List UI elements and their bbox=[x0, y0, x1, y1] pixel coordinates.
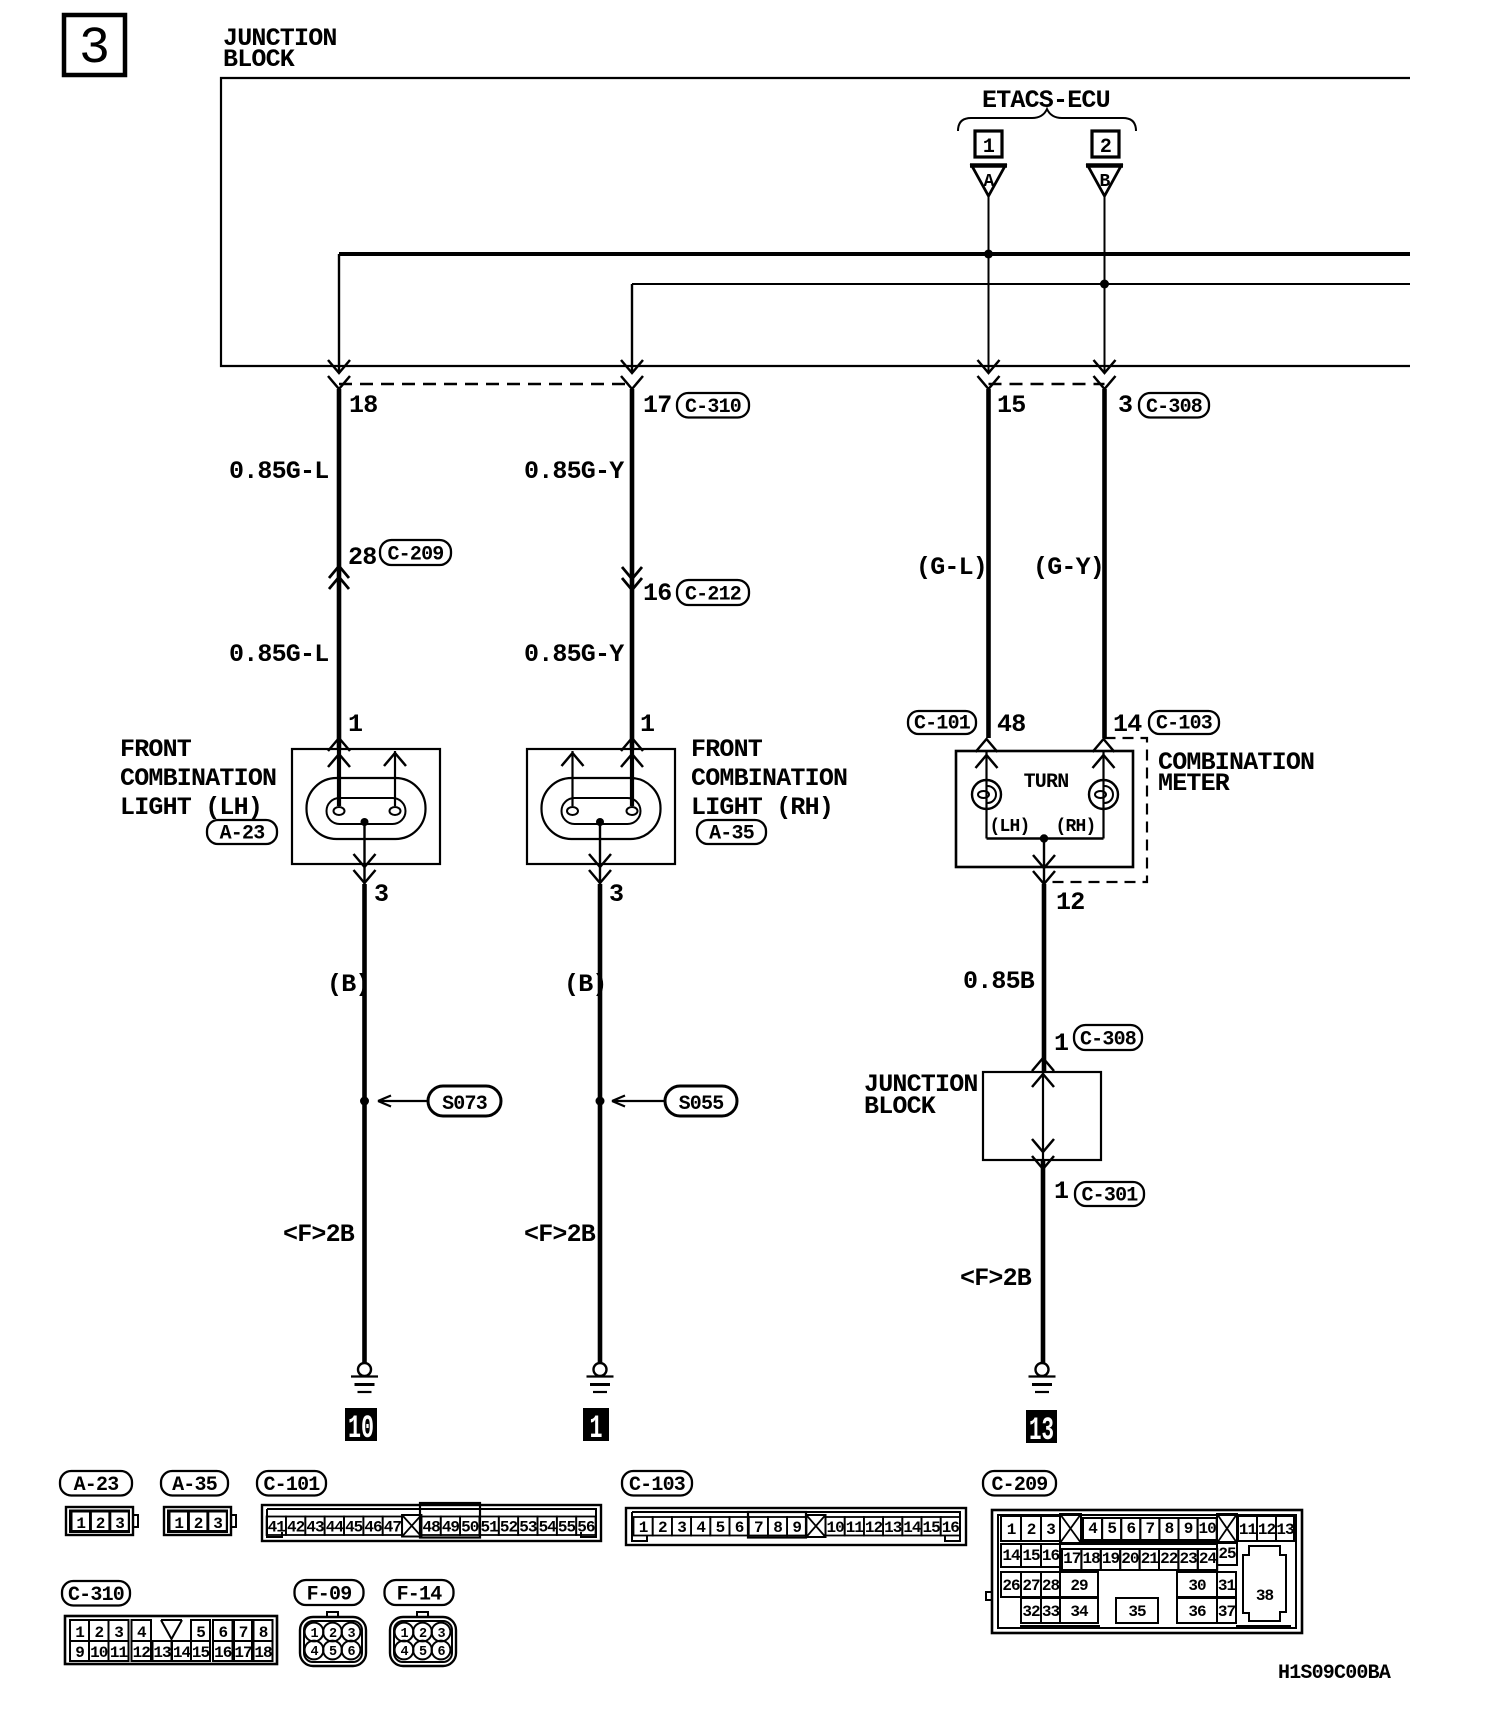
svg-text:A-23: A-23 bbox=[74, 1474, 119, 1497]
svg-text:7: 7 bbox=[239, 1624, 248, 1642]
svg-text:9: 9 bbox=[75, 1644, 84, 1662]
svg-text:16: 16 bbox=[942, 1519, 960, 1537]
svg-text:4: 4 bbox=[1088, 1520, 1098, 1538]
svg-text:H1S09C00BA: H1S09C00BA bbox=[1278, 1662, 1391, 1685]
svg-text:C-308: C-308 bbox=[1146, 396, 1202, 419]
svg-text:C-301: C-301 bbox=[1081, 1185, 1138, 1208]
svg-text:28: 28 bbox=[348, 543, 376, 572]
svg-text:(LH): (LH) bbox=[989, 817, 1029, 837]
svg-text:16: 16 bbox=[643, 579, 671, 608]
svg-text:41: 41 bbox=[268, 1519, 286, 1537]
svg-text:0.85G-L: 0.85G-L bbox=[229, 640, 328, 669]
svg-text:20: 20 bbox=[1121, 1550, 1139, 1568]
svg-text:A: A bbox=[983, 172, 994, 192]
svg-text:14: 14 bbox=[1113, 710, 1142, 739]
svg-text:30: 30 bbox=[1188, 1577, 1206, 1595]
svg-text:46: 46 bbox=[364, 1519, 382, 1537]
svg-text:17: 17 bbox=[643, 391, 671, 420]
svg-text:2: 2 bbox=[1100, 136, 1111, 159]
svg-text:1: 1 bbox=[640, 710, 654, 739]
svg-text:2: 2 bbox=[1027, 1521, 1036, 1539]
svg-text:29: 29 bbox=[1070, 1577, 1088, 1595]
svg-text:3: 3 bbox=[1118, 391, 1132, 420]
svg-text:13: 13 bbox=[884, 1519, 902, 1537]
svg-text:18: 18 bbox=[254, 1644, 272, 1662]
svg-text:1: 1 bbox=[76, 1515, 85, 1533]
svg-text:15: 15 bbox=[922, 1519, 940, 1537]
svg-text:17: 17 bbox=[1063, 1550, 1081, 1568]
svg-text:16: 16 bbox=[1042, 1547, 1060, 1565]
svg-text:12: 12 bbox=[133, 1644, 151, 1662]
svg-text:12: 12 bbox=[1258, 1521, 1276, 1539]
svg-text:52: 52 bbox=[500, 1519, 518, 1537]
svg-text:8: 8 bbox=[259, 1624, 268, 1642]
svg-text:54: 54 bbox=[539, 1519, 558, 1537]
svg-text:34: 34 bbox=[1070, 1603, 1089, 1621]
svg-text:14: 14 bbox=[173, 1644, 192, 1662]
svg-text:9: 9 bbox=[792, 1519, 801, 1537]
svg-text:5: 5 bbox=[419, 1645, 427, 1660]
svg-text:<F>2B: <F>2B bbox=[283, 1220, 355, 1249]
svg-text:FRONT: FRONT bbox=[691, 735, 763, 764]
svg-text:14: 14 bbox=[903, 1519, 922, 1537]
svg-text:37: 37 bbox=[1218, 1603, 1236, 1621]
svg-text:2: 2 bbox=[94, 1624, 103, 1642]
svg-text:31: 31 bbox=[1218, 1577, 1236, 1595]
svg-text:51: 51 bbox=[481, 1519, 499, 1537]
svg-text:C-209: C-209 bbox=[991, 1474, 1047, 1497]
svg-text:B: B bbox=[1099, 172, 1110, 192]
svg-text:(B): (B) bbox=[564, 970, 607, 999]
svg-text:(G-L): (G-L) bbox=[916, 553, 987, 582]
svg-text:6: 6 bbox=[437, 1645, 445, 1660]
svg-text:BLOCK: BLOCK bbox=[223, 45, 295, 74]
svg-text:35: 35 bbox=[1128, 1603, 1146, 1621]
svg-text:S055: S055 bbox=[679, 1093, 724, 1116]
svg-text:19: 19 bbox=[1102, 1550, 1120, 1568]
svg-text:3: 3 bbox=[677, 1519, 686, 1537]
svg-text:3: 3 bbox=[115, 1515, 124, 1533]
svg-text:8: 8 bbox=[773, 1519, 782, 1537]
svg-text:27: 27 bbox=[1022, 1577, 1040, 1595]
svg-text:(RH): (RH) bbox=[1055, 817, 1095, 837]
svg-text:11: 11 bbox=[1239, 1521, 1257, 1539]
svg-text:0.85G-L: 0.85G-L bbox=[229, 457, 328, 486]
svg-text:6: 6 bbox=[347, 1645, 355, 1660]
svg-text:4: 4 bbox=[137, 1624, 147, 1642]
svg-text:48: 48 bbox=[997, 710, 1025, 739]
svg-text:13: 13 bbox=[1276, 1521, 1294, 1539]
svg-text:23: 23 bbox=[1179, 1550, 1197, 1568]
svg-text:C-103: C-103 bbox=[1156, 713, 1212, 736]
svg-text:38: 38 bbox=[1256, 1587, 1274, 1605]
svg-text:BLOCK: BLOCK bbox=[864, 1092, 936, 1121]
svg-text:15: 15 bbox=[192, 1644, 210, 1662]
svg-text:(B): (B) bbox=[327, 970, 370, 999]
svg-text:17: 17 bbox=[234, 1644, 252, 1662]
svg-text:49: 49 bbox=[442, 1519, 460, 1537]
svg-text:1: 1 bbox=[639, 1519, 648, 1537]
svg-text:10: 10 bbox=[1199, 1520, 1217, 1538]
svg-text:48: 48 bbox=[422, 1519, 440, 1537]
svg-text:1: 1 bbox=[75, 1624, 84, 1642]
svg-text:1: 1 bbox=[1054, 1029, 1068, 1058]
svg-text:11: 11 bbox=[110, 1644, 128, 1662]
svg-text:12: 12 bbox=[1056, 888, 1084, 917]
svg-text:7: 7 bbox=[754, 1519, 763, 1537]
svg-text:A-23: A-23 bbox=[220, 823, 265, 846]
svg-text:A-35: A-35 bbox=[172, 1474, 217, 1497]
svg-text:5: 5 bbox=[716, 1519, 725, 1537]
svg-text:16: 16 bbox=[214, 1644, 232, 1662]
svg-text:12: 12 bbox=[865, 1519, 883, 1537]
svg-text:6: 6 bbox=[218, 1624, 227, 1642]
svg-text:LIGHT (RH): LIGHT (RH) bbox=[691, 793, 833, 822]
svg-text:3: 3 bbox=[1046, 1521, 1055, 1539]
svg-text:FRONT: FRONT bbox=[120, 735, 192, 764]
svg-text:44: 44 bbox=[326, 1519, 345, 1537]
svg-text:<F>2B: <F>2B bbox=[960, 1264, 1032, 1293]
svg-text:45: 45 bbox=[345, 1519, 363, 1537]
svg-text:COMBINATION: COMBINATION bbox=[691, 764, 847, 793]
svg-text:10: 10 bbox=[826, 1519, 844, 1537]
svg-text:3: 3 bbox=[213, 1515, 222, 1533]
svg-text:C-101: C-101 bbox=[263, 1474, 320, 1497]
svg-text:0.85G-Y: 0.85G-Y bbox=[524, 457, 624, 486]
svg-text:53: 53 bbox=[519, 1519, 537, 1537]
svg-text:3: 3 bbox=[374, 880, 388, 909]
svg-text:4: 4 bbox=[310, 1645, 318, 1660]
svg-text:1: 1 bbox=[983, 136, 995, 159]
svg-text:C-310: C-310 bbox=[685, 396, 741, 419]
svg-text:15: 15 bbox=[997, 391, 1025, 420]
svg-text:0.85G-Y: 0.85G-Y bbox=[524, 640, 624, 669]
svg-text:14: 14 bbox=[1002, 1547, 1021, 1565]
svg-text:F-14: F-14 bbox=[397, 1584, 443, 1607]
svg-text:36: 36 bbox=[1188, 1603, 1206, 1621]
svg-text:33: 33 bbox=[1042, 1603, 1060, 1621]
svg-text:F-09: F-09 bbox=[307, 1584, 352, 1607]
svg-text:3: 3 bbox=[609, 880, 623, 909]
svg-text:6: 6 bbox=[735, 1519, 744, 1537]
svg-text:43: 43 bbox=[306, 1519, 324, 1537]
svg-text:1: 1 bbox=[590, 1410, 603, 1447]
svg-text:5: 5 bbox=[196, 1624, 205, 1642]
svg-text:50: 50 bbox=[461, 1519, 479, 1537]
svg-text:26: 26 bbox=[1002, 1577, 1020, 1595]
svg-text:1: 1 bbox=[174, 1515, 183, 1533]
svg-text:25: 25 bbox=[1218, 1545, 1236, 1563]
svg-text:A-35: A-35 bbox=[709, 823, 754, 846]
svg-text:28: 28 bbox=[1042, 1577, 1060, 1595]
svg-text:2: 2 bbox=[194, 1515, 203, 1533]
svg-text:<F>2B: <F>2B bbox=[524, 1220, 596, 1249]
svg-text:C-101: C-101 bbox=[914, 713, 971, 736]
svg-text:LIGHT (LH): LIGHT (LH) bbox=[120, 793, 262, 822]
svg-text:56: 56 bbox=[577, 1519, 595, 1537]
svg-text:C-310: C-310 bbox=[68, 1584, 124, 1607]
svg-text:47: 47 bbox=[384, 1519, 402, 1537]
svg-text:C-308: C-308 bbox=[1080, 1029, 1136, 1052]
svg-text:10: 10 bbox=[90, 1644, 108, 1662]
svg-text:(G-Y): (G-Y) bbox=[1033, 553, 1104, 582]
svg-text:2: 2 bbox=[96, 1515, 105, 1533]
svg-text:6: 6 bbox=[1126, 1520, 1135, 1538]
svg-text:24: 24 bbox=[1199, 1550, 1218, 1568]
svg-text:5: 5 bbox=[1107, 1520, 1116, 1538]
svg-text:15: 15 bbox=[1022, 1547, 1040, 1565]
svg-text:21: 21 bbox=[1141, 1550, 1159, 1568]
svg-text:5: 5 bbox=[329, 1645, 337, 1660]
svg-text:42: 42 bbox=[287, 1519, 305, 1537]
svg-text:S073: S073 bbox=[442, 1093, 487, 1116]
svg-text:TURN: TURN bbox=[1024, 771, 1069, 794]
svg-text:10: 10 bbox=[348, 1410, 374, 1447]
svg-text:C-209: C-209 bbox=[387, 544, 443, 567]
svg-text:1: 1 bbox=[1007, 1521, 1016, 1539]
svg-text:C-212: C-212 bbox=[685, 584, 741, 607]
svg-text:COMBINATION: COMBINATION bbox=[120, 764, 276, 793]
svg-text:7: 7 bbox=[1146, 1520, 1155, 1538]
svg-text:0.85B: 0.85B bbox=[963, 967, 1035, 996]
svg-text:8: 8 bbox=[1165, 1520, 1174, 1538]
svg-text:3: 3 bbox=[114, 1624, 123, 1642]
svg-text:1: 1 bbox=[348, 710, 362, 739]
svg-text:11: 11 bbox=[846, 1519, 864, 1537]
svg-text:4: 4 bbox=[400, 1645, 408, 1660]
svg-text:55: 55 bbox=[558, 1519, 576, 1537]
svg-text:32: 32 bbox=[1022, 1603, 1040, 1621]
svg-text:1: 1 bbox=[1054, 1177, 1068, 1206]
svg-text:3: 3 bbox=[79, 19, 110, 78]
svg-text:18: 18 bbox=[1082, 1550, 1100, 1568]
svg-text:18: 18 bbox=[349, 391, 377, 420]
svg-text:METER: METER bbox=[1158, 769, 1230, 798]
svg-text:13: 13 bbox=[153, 1644, 171, 1662]
svg-text:22: 22 bbox=[1160, 1550, 1178, 1568]
svg-text:9: 9 bbox=[1184, 1520, 1193, 1538]
svg-text:4: 4 bbox=[696, 1519, 706, 1537]
svg-text:13: 13 bbox=[1029, 1412, 1054, 1449]
svg-text:C-103: C-103 bbox=[629, 1474, 685, 1497]
svg-text:2: 2 bbox=[658, 1519, 667, 1537]
